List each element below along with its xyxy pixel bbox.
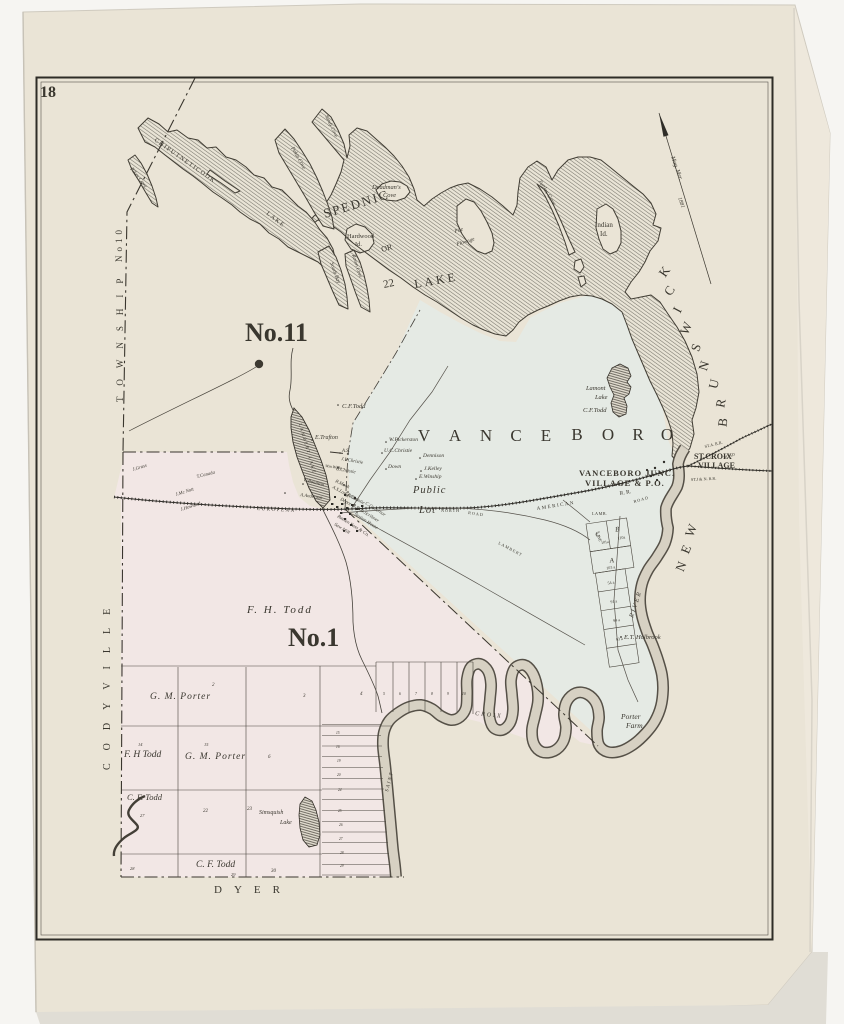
svg-text:8: 8	[431, 692, 433, 696]
svg-text:NORTH: NORTH	[441, 508, 460, 513]
svg-text:F. H Todd: F. H Todd	[123, 750, 161, 760]
svg-text:19: 19	[337, 759, 341, 763]
svg-text:9: 9	[447, 692, 449, 696]
svg-text:Public: Public	[412, 485, 446, 496]
svg-text:E.Winship: E.Winship	[418, 474, 442, 480]
svg-text:A.S.: A.S.	[341, 449, 350, 454]
svg-text:20: 20	[337, 773, 341, 777]
svg-text:Lake: Lake	[279, 820, 292, 826]
svg-text:Porter: Porter	[620, 712, 641, 721]
svg-text:V: V	[418, 426, 431, 445]
svg-text:Lake: Lake	[594, 394, 608, 401]
svg-text:28: 28	[340, 851, 344, 855]
svg-text:Deadman's: Deadman's	[371, 184, 401, 191]
svg-text:23: 23	[247, 807, 253, 812]
svg-text:25: 25	[338, 809, 342, 813]
svg-text:G. M. Porter: G. M. Porter	[150, 692, 211, 702]
svg-text:G. M. Porter: G. M. Porter	[185, 752, 246, 762]
svg-text:E.T. Holbrook: E.T. Holbrook	[623, 634, 661, 641]
svg-text:93 a: 93 a	[616, 636, 624, 642]
svg-text:C: C	[510, 426, 521, 445]
svg-text:E.Trafton: E.Trafton	[314, 434, 338, 441]
svg-text:18: 18	[40, 84, 56, 101]
svg-text:R: R	[632, 425, 644, 444]
svg-text:VANCEBORO JUNC.: VANCEBORO JUNC.	[579, 468, 675, 478]
svg-text:Farm: Farm	[625, 721, 643, 730]
svg-text:C. F. Todd: C. F. Todd	[127, 792, 163, 802]
svg-text:16: 16	[336, 745, 340, 749]
svg-text:No.11: No.11	[245, 318, 308, 347]
svg-text:N: N	[480, 426, 492, 445]
svg-text:Id.: Id.	[600, 230, 608, 238]
svg-text:J.Kelley: J.Kelley	[424, 466, 442, 472]
svg-text:22: 22	[203, 809, 209, 814]
svg-text:6: 6	[399, 692, 401, 696]
svg-text:Hardwood: Hardwood	[347, 233, 375, 240]
svg-text:24: 24	[338, 788, 342, 792]
svg-text:Cove: Cove	[383, 192, 396, 199]
svg-text:No10: No10	[114, 226, 124, 262]
svg-text:No.1: No.1	[288, 623, 339, 652]
svg-text:26: 26	[339, 823, 343, 827]
svg-text:C. F. Todd: C. F. Todd	[196, 860, 235, 870]
svg-text:U.C.Christie: U.C.Christie	[384, 448, 413, 454]
svg-text:B: B	[571, 425, 582, 444]
svg-text:A: A	[449, 426, 462, 445]
svg-text:10: 10	[462, 692, 466, 696]
svg-text:F. H. Todd: F. H. Todd	[246, 604, 313, 616]
svg-text:29: 29	[340, 864, 344, 868]
svg-text:C.F.Todd: C.F.Todd	[342, 403, 366, 410]
svg-text:O: O	[661, 425, 673, 444]
svg-text:91 a: 91 a	[610, 598, 618, 604]
svg-text:Id.: Id.	[355, 241, 362, 248]
svg-text:Simsquish: Simsquish	[259, 810, 283, 816]
svg-text:Lamont: Lamont	[585, 385, 606, 392]
svg-text:E: E	[541, 426, 551, 445]
svg-text:15: 15	[336, 731, 340, 735]
svg-text:54 a: 54 a	[607, 579, 615, 585]
svg-text:LAMB.: LAMB.	[592, 511, 608, 516]
svg-text:94 a: 94 a	[613, 617, 621, 623]
svg-text:O: O	[602, 425, 614, 444]
svg-text:CODYVILLE: CODYVILLE	[102, 596, 113, 770]
svg-text:TOWNSHIP: TOWNSHIP	[115, 268, 125, 402]
svg-text:30: 30	[271, 869, 277, 874]
svg-text:27: 27	[339, 837, 343, 841]
svg-text:Down: Down	[387, 464, 401, 470]
svg-text:Lot: Lot	[418, 505, 436, 516]
svg-text:DYER: DYER	[214, 884, 292, 896]
svg-text:VILLAGE: VILLAGE	[698, 461, 735, 470]
svg-text:Dennison: Dennison	[422, 453, 444, 459]
svg-text:C.F.Todd: C.F.Todd	[583, 407, 607, 414]
svg-text:W.Pickerston: W.Pickerston	[389, 437, 418, 443]
svg-text:5: 5	[383, 692, 385, 696]
svg-text:Indian: Indian	[595, 221, 613, 229]
svg-text:VILLAGE & P.O.: VILLAGE & P.O.	[585, 478, 665, 488]
